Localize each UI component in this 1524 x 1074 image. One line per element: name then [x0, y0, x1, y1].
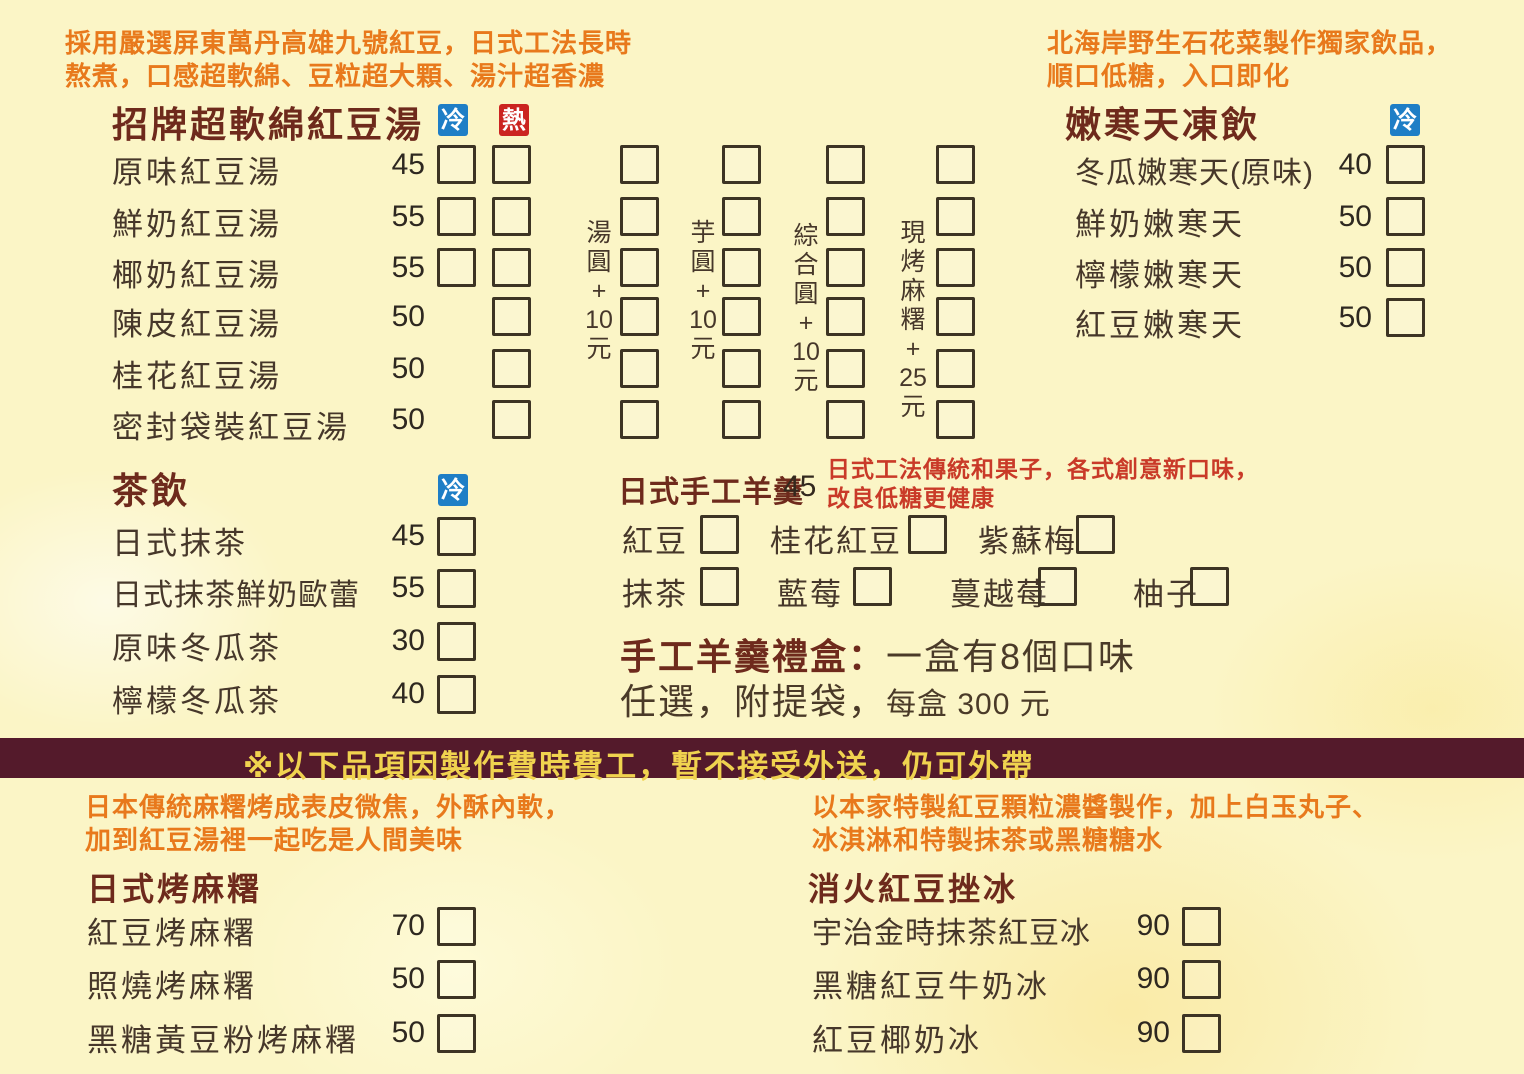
- checkbox-topping[interactable]: [826, 349, 865, 388]
- red-bean-soup-note: 採用嚴選屏東萬丹高雄九號紅豆，日式工法長時 熬煮，口感超軟綿、豆粒超大顆、湯汁超…: [65, 27, 632, 93]
- menu-item-name: 日式抹茶: [112, 518, 248, 563]
- section-title-shaved-ice: 消火紅豆挫冰: [808, 864, 1018, 910]
- checkbox-topping[interactable]: [936, 349, 975, 388]
- checkbox[interactable]: [1182, 907, 1221, 946]
- no-delivery-banner: ※以下品項因製作費時費工，暫不接受外送，仍可外帶: [0, 738, 1524, 778]
- menu-item-price: 90: [1120, 962, 1170, 996]
- menu-item-price: 50: [1322, 200, 1372, 234]
- menu-item-name: 照燒烤麻糬: [87, 961, 257, 1006]
- cold-badge: 冷: [438, 474, 468, 506]
- checkbox-topping[interactable]: [722, 400, 761, 439]
- menu-item-price: 50: [381, 352, 425, 386]
- checkbox-flavor[interactable]: [908, 515, 947, 554]
- yokan-flavor: 蔓越莓: [950, 569, 1049, 614]
- checkbox-cold[interactable]: [437, 145, 476, 184]
- menu-item-price: 30: [381, 624, 425, 658]
- section-title-grilled-mochi: 日式烤麻糬: [87, 864, 262, 910]
- menu-page: 採用嚴選屏東萬丹高雄九號紅豆，日式工法長時 熬煮，口感超軟綿、豆粒超大顆、湯汁超…: [0, 0, 1524, 1074]
- gift-box-line2: 任選，附提袋，每盒 300 元: [620, 673, 1051, 725]
- shaved-ice-note: 以本家特製紅豆顆粒濃醬製作，加上白玉丸子、 冰淇淋和特製抹茶或黑糖糖水: [812, 791, 1379, 857]
- menu-item-name: 冬瓜嫩寒天(原味): [1075, 148, 1314, 192]
- checkbox[interactable]: [437, 907, 476, 946]
- menu-item-name: 鮮奶紅豆湯: [112, 199, 282, 244]
- checkbox-flavor[interactable]: [1038, 567, 1077, 606]
- topping-label-tangyuan: 湯 圓 + 10 元: [582, 219, 616, 364]
- menu-item-price: 90: [1120, 909, 1170, 943]
- menu-item-name: 紅豆烤麻糬: [87, 908, 257, 953]
- checkbox[interactable]: [437, 569, 476, 608]
- checkbox-topping[interactable]: [936, 297, 975, 336]
- checkbox-flavor[interactable]: [853, 567, 892, 606]
- menu-item-name: 檸檬冬瓜茶: [112, 676, 282, 721]
- checkbox-topping[interactable]: [826, 197, 865, 236]
- checkbox-topping[interactable]: [620, 248, 659, 287]
- menu-item-name: 黑糖黃豆粉烤麻糬: [87, 1015, 359, 1060]
- checkbox[interactable]: [1386, 197, 1425, 236]
- menu-item-price: 40: [1322, 148, 1372, 182]
- checkbox-topping[interactable]: [826, 145, 865, 184]
- note-line: 熬煮，口感超軟綿、豆粒超大顆、湯汁超香濃: [65, 60, 632, 93]
- menu-item-name: 陳皮紅豆湯: [112, 299, 282, 344]
- checkbox-topping[interactable]: [936, 197, 975, 236]
- menu-item-price: 50: [1322, 251, 1372, 285]
- checkbox-flavor[interactable]: [1190, 567, 1229, 606]
- menu-item-price: 50: [381, 1016, 425, 1050]
- checkbox[interactable]: [1386, 248, 1425, 287]
- checkbox-hot[interactable]: [492, 400, 531, 439]
- checkbox[interactable]: [1182, 960, 1221, 999]
- checkbox-topping[interactable]: [722, 145, 761, 184]
- menu-item-price: 55: [381, 251, 425, 285]
- menu-item-price: 50: [381, 403, 425, 437]
- checkbox-topping[interactable]: [620, 197, 659, 236]
- menu-item-name: 日式抹茶鮮奶歐蕾: [112, 570, 360, 614]
- hot-badge: 熱: [499, 104, 529, 136]
- checkbox-flavor[interactable]: [700, 567, 739, 606]
- menu-item-price: 50: [381, 300, 425, 334]
- yokan-flavor: 紫蘇梅: [978, 516, 1077, 561]
- yokan-price: 45: [783, 470, 816, 504]
- section-title-tea: 茶飲: [112, 462, 190, 514]
- menu-item-name: 紅豆嫩寒天: [1075, 300, 1245, 345]
- checkbox-topping[interactable]: [620, 297, 659, 336]
- checkbox-topping[interactable]: [936, 400, 975, 439]
- topping-label-grilled-mochi: 現 烤 麻 糬 + 25 元: [896, 219, 930, 422]
- checkbox-flavor[interactable]: [1076, 515, 1115, 554]
- checkbox-hot[interactable]: [492, 297, 531, 336]
- cold-badge: 冷: [1390, 104, 1420, 136]
- gift-box-title: 手工羊羹禮盒: [620, 636, 848, 677]
- topping-label-taroball: 芋 圓 + 10 元: [686, 219, 720, 364]
- checkbox-topping[interactable]: [620, 145, 659, 184]
- section-title-yokan: 日式手工羊羹: [618, 467, 804, 511]
- menu-item-name: 密封袋裝紅豆湯: [112, 402, 350, 447]
- grilled-mochi-note: 日本傳統麻糬烤成表皮微焦，外酥內軟， 加到紅豆湯裡一起吃是人間美味: [85, 791, 571, 857]
- menu-item-price: 50: [381, 962, 425, 996]
- menu-item-price: 50: [1322, 301, 1372, 335]
- checkbox[interactable]: [1386, 145, 1425, 184]
- menu-item-name: 桂花紅豆湯: [112, 351, 282, 396]
- note-line: 順口低糖，入口即化: [1047, 60, 1452, 93]
- menu-item-price: 70: [381, 909, 425, 943]
- checkbox[interactable]: [437, 1014, 476, 1053]
- menu-item-name: 鮮奶嫩寒天: [1075, 199, 1245, 244]
- cold-badge: 冷: [438, 104, 468, 136]
- checkbox-topping[interactable]: [826, 400, 865, 439]
- yokan-flavor: 桂花紅豆: [770, 516, 902, 561]
- checkbox-hot[interactable]: [492, 349, 531, 388]
- section-title-red-bean-soup: 招牌超軟綿紅豆湯: [112, 96, 424, 148]
- checkbox[interactable]: [437, 960, 476, 999]
- note-line: 北海岸野生石花菜製作獨家飲品，: [1047, 27, 1452, 60]
- menu-item-name: 檸檬嫩寒天: [1075, 250, 1245, 295]
- topping-label-mixedball: 綜 合 圓 + 10 元: [789, 222, 823, 396]
- menu-item-name: 原味紅豆湯: [112, 147, 282, 192]
- checkbox-topping[interactable]: [620, 349, 659, 388]
- checkbox-cold[interactable]: [437, 197, 476, 236]
- menu-item-price: 90: [1120, 1016, 1170, 1050]
- menu-item-name: 黑糖紅豆牛奶冰: [812, 961, 1050, 1006]
- checkbox-topping[interactable]: [826, 248, 865, 287]
- checkbox-topping[interactable]: [722, 349, 761, 388]
- checkbox[interactable]: [437, 517, 476, 556]
- checkbox-hot[interactable]: [492, 197, 531, 236]
- checkbox-topping[interactable]: [722, 197, 761, 236]
- yokan-flavor: 藍莓: [777, 569, 843, 614]
- checkbox-topping[interactable]: [620, 400, 659, 439]
- checkbox-hot[interactable]: [492, 145, 531, 184]
- checkbox-topping[interactable]: [826, 297, 865, 336]
- yokan-flavor: 紅豆: [622, 516, 688, 561]
- menu-item-price: 45: [381, 519, 425, 553]
- checkbox-cold[interactable]: [437, 248, 476, 287]
- menu-item-name: 紅豆椰奶冰: [812, 1015, 982, 1060]
- menu-item-name: 宇治金時抹茶紅豆冰: [812, 908, 1091, 952]
- checkbox-hot[interactable]: [492, 248, 531, 287]
- banner-text: ※以下品項因製作費時費工，暫不接受外送，仍可外帶: [243, 741, 1034, 786]
- checkbox-topping[interactable]: [722, 248, 761, 287]
- yokan-flavor: 抹茶: [622, 569, 688, 614]
- checkbox[interactable]: [1386, 298, 1425, 337]
- menu-item-name: 原味冬瓜茶: [112, 623, 282, 668]
- checkbox[interactable]: [437, 622, 476, 661]
- checkbox-topping[interactable]: [936, 248, 975, 287]
- menu-item-price: 40: [381, 677, 425, 711]
- menu-item-price: 55: [381, 200, 425, 234]
- menu-item-name: 椰奶紅豆湯: [112, 250, 282, 295]
- checkbox[interactable]: [1182, 1014, 1221, 1053]
- menu-item-price: 45: [381, 148, 425, 182]
- note-line: 採用嚴選屏東萬丹高雄九號紅豆，日式工法長時: [65, 27, 632, 60]
- agar-drinks-note: 北海岸野生石花菜製作獨家飲品， 順口低糖，入口即化: [1047, 27, 1452, 93]
- checkbox-flavor[interactable]: [700, 515, 739, 554]
- yokan-note: 日式工法傳統和果子，各式創意新口味， 改良低糖更健康: [827, 455, 1259, 513]
- section-title-agar-drinks: 嫩寒天凍飲: [1065, 96, 1260, 148]
- checkbox-topping[interactable]: [936, 145, 975, 184]
- menu-item-price: 55: [381, 571, 425, 605]
- checkbox[interactable]: [437, 675, 476, 714]
- checkbox-topping[interactable]: [722, 297, 761, 336]
